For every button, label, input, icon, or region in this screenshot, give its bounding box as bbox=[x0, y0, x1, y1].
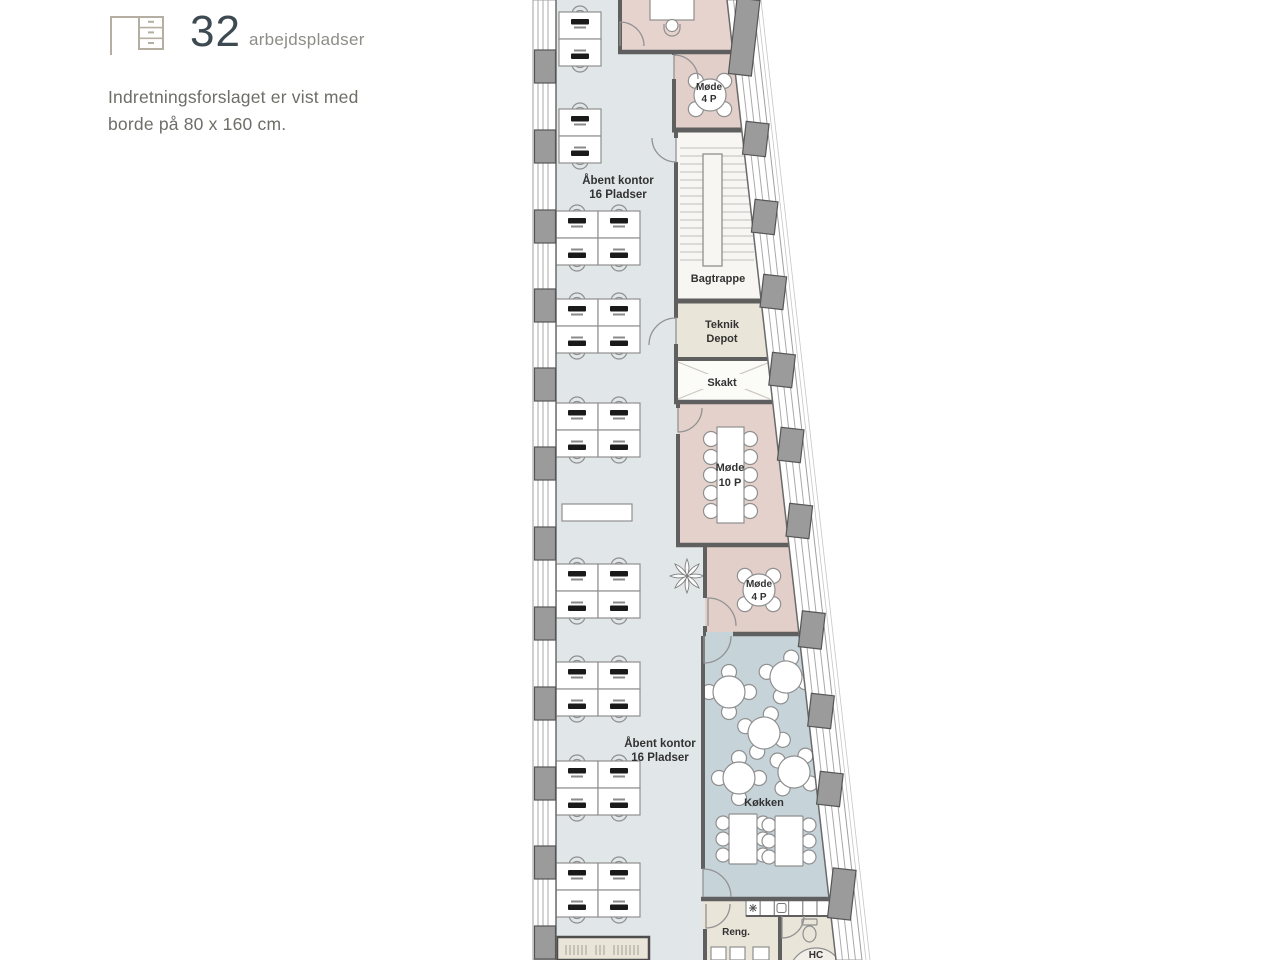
label-bagtrappe: Bagtrappe bbox=[691, 273, 745, 285]
svg-text:16 Pladser: 16 Pladser bbox=[631, 752, 689, 764]
desk-cluster bbox=[556, 558, 640, 624]
floor-plan: Åbent kontor 16 Pladser Møde 4 P Bagtrap… bbox=[0, 0, 1280, 960]
floor-plan-page: 32 arbejdspladser Indretningsforslaget e… bbox=[0, 0, 1280, 960]
desk-cluster bbox=[556, 656, 640, 722]
reng-fixtures bbox=[711, 947, 769, 960]
svg-text:Depot: Depot bbox=[706, 333, 738, 345]
desk-cluster bbox=[556, 857, 640, 923]
svg-text:4 P: 4 P bbox=[701, 94, 716, 105]
label-mode-10p: Møde bbox=[716, 462, 745, 474]
desk-cluster bbox=[556, 397, 640, 463]
svg-text:16 Pladser: 16 Pladser bbox=[589, 189, 647, 201]
label-skakt: Skakt bbox=[707, 377, 737, 389]
label-teknik-depot: Teknik bbox=[705, 319, 740, 331]
label-hc: HC bbox=[809, 950, 823, 960]
svg-text:4 P: 4 P bbox=[751, 592, 766, 603]
label-open-office-top: Åbent kontor bbox=[582, 174, 654, 187]
desk-cluster bbox=[556, 755, 640, 821]
desk-cluster bbox=[556, 205, 640, 271]
left-facade bbox=[533, 0, 556, 960]
desk-cluster bbox=[559, 103, 601, 169]
label-mode-4p-top: Møde bbox=[696, 82, 723, 93]
label-kokken: Køkken bbox=[744, 797, 784, 809]
label-open-office-bottom: Åbent kontor bbox=[624, 737, 696, 750]
sideboard bbox=[562, 504, 632, 521]
closet bbox=[557, 937, 649, 960]
desk-cluster bbox=[556, 293, 640, 359]
label-mode-4p-mid: Møde bbox=[746, 579, 773, 590]
kitchen-counter bbox=[746, 900, 831, 916]
desk-cluster bbox=[559, 6, 601, 72]
plant-icon bbox=[670, 559, 704, 593]
svg-text:10 P: 10 P bbox=[719, 477, 742, 489]
mode-10p-table bbox=[704, 427, 758, 523]
label-reng: Reng. bbox=[722, 927, 750, 938]
